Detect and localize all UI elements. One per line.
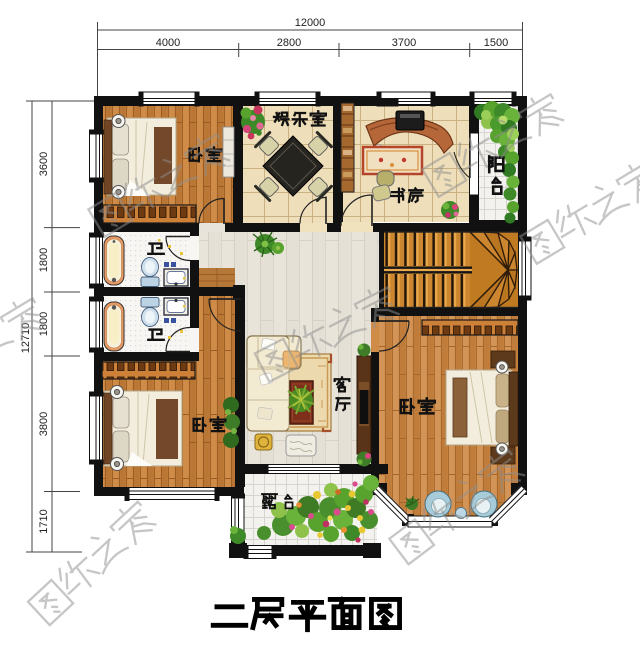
svg-text:1710: 1710 — [38, 509, 50, 533]
svg-text:12000: 12000 — [295, 17, 326, 29]
svg-text:1800: 1800 — [38, 248, 50, 272]
svg-text:3800: 3800 — [38, 412, 50, 436]
svg-text:1500: 1500 — [484, 37, 508, 49]
svg-text:2800: 2800 — [277, 37, 301, 49]
svg-text:3600: 3600 — [38, 152, 50, 176]
svg-text:3700: 3700 — [392, 37, 416, 49]
svg-text:4000: 4000 — [156, 37, 180, 49]
